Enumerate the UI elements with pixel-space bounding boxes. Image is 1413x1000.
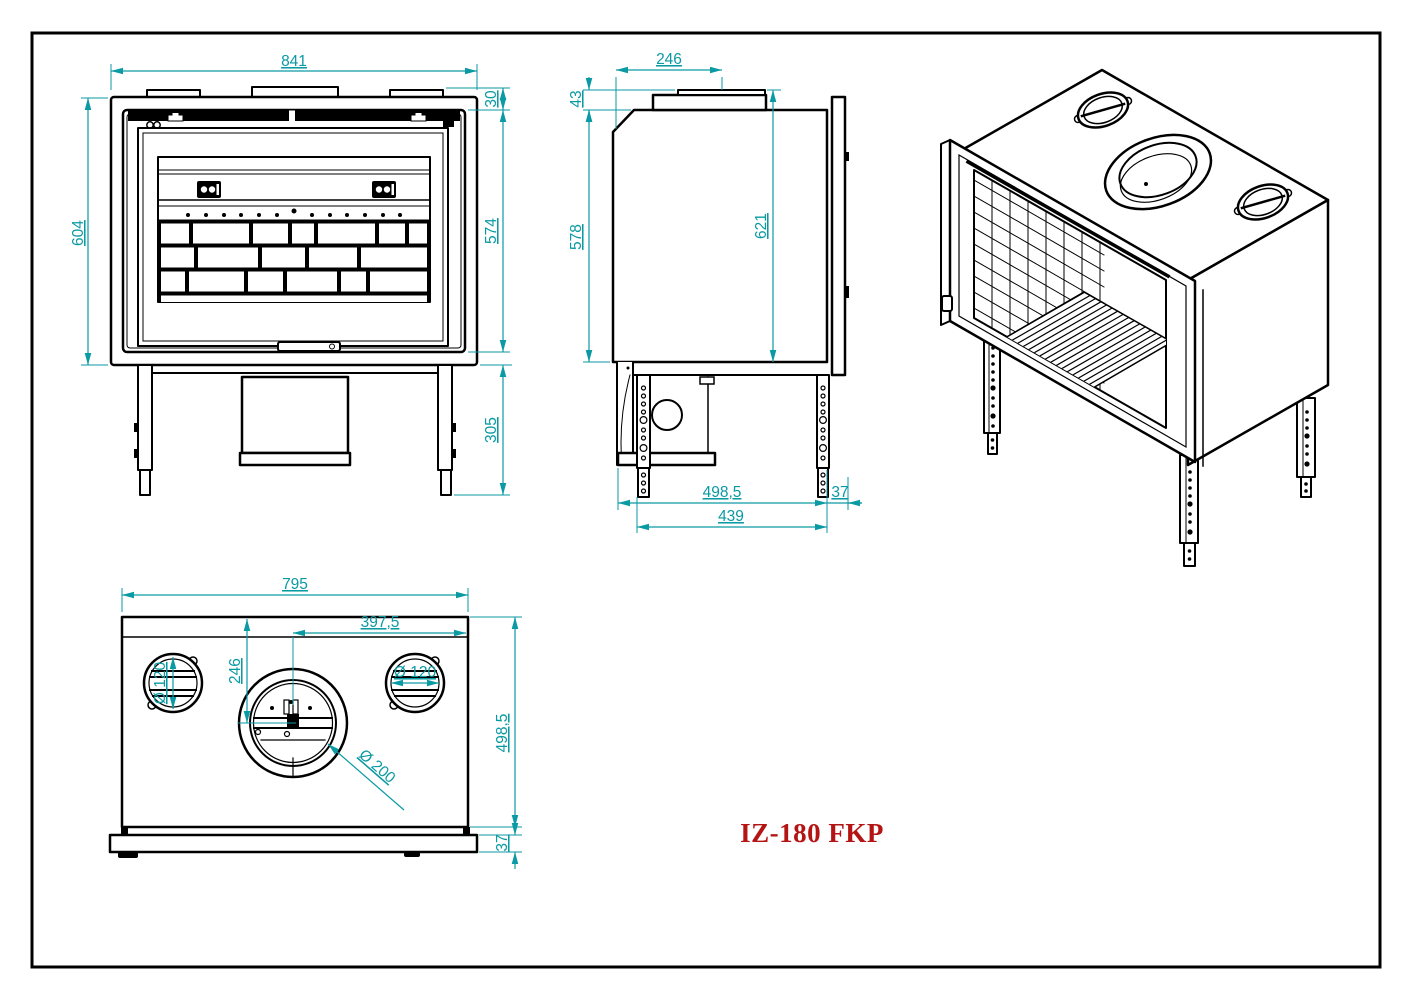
dim-right-vent-diameter: Ø 120 (394, 664, 437, 681)
firebrick-lining (158, 220, 430, 302)
dim-left-vent-diameter: Ø 120 (152, 662, 169, 705)
side-body (613, 90, 849, 375)
drawing-canvas: 841 604 30 574 305 (0, 0, 1413, 1000)
dim-front-body-height: 604 (70, 220, 87, 246)
dim-bottom-half-width: 397,5 (361, 614, 400, 631)
dim-side-total-height: 621 (753, 213, 770, 239)
dim-bottom-flue-offset: 246 (227, 658, 244, 684)
side-hole (652, 400, 682, 430)
dim-side-body-height: 578 (568, 224, 585, 250)
bottom-base-strip (110, 835, 477, 852)
dim-side-collar-width: 246 (656, 51, 682, 68)
dim-front-top-offset: 30 (483, 90, 500, 108)
dim-bottom-width: 795 (282, 576, 308, 593)
dim-side-frame-depth: 37 (831, 484, 848, 501)
side-front-frame (832, 97, 845, 375)
drawing-sheet: 841 604 30 574 305 (0, 0, 1413, 1000)
dim-front-door-height: 574 (483, 218, 500, 244)
side-flue-collar (653, 95, 766, 110)
dim-front-leg-height: 305 (483, 417, 500, 443)
dim-side-collar-height: 43 (568, 90, 585, 107)
model-title: IZ-180 FKP (740, 818, 884, 848)
front-view: 841 604 30 574 305 (70, 53, 512, 495)
dim-bottom-depth: 498,5 (494, 714, 511, 753)
dim-bottom-base-height: 37 (494, 834, 511, 851)
dim-front-width: 841 (281, 53, 307, 70)
dim-side-depth: 498,5 (703, 484, 742, 501)
iso-latch-tab (942, 296, 952, 311)
dim-side-leg-span: 439 (718, 508, 744, 525)
bottom-view: 795 397,5 246 Ø 120 Ø 120 Ø 200 498,5 37 (110, 576, 522, 869)
ash-duct (242, 377, 348, 453)
